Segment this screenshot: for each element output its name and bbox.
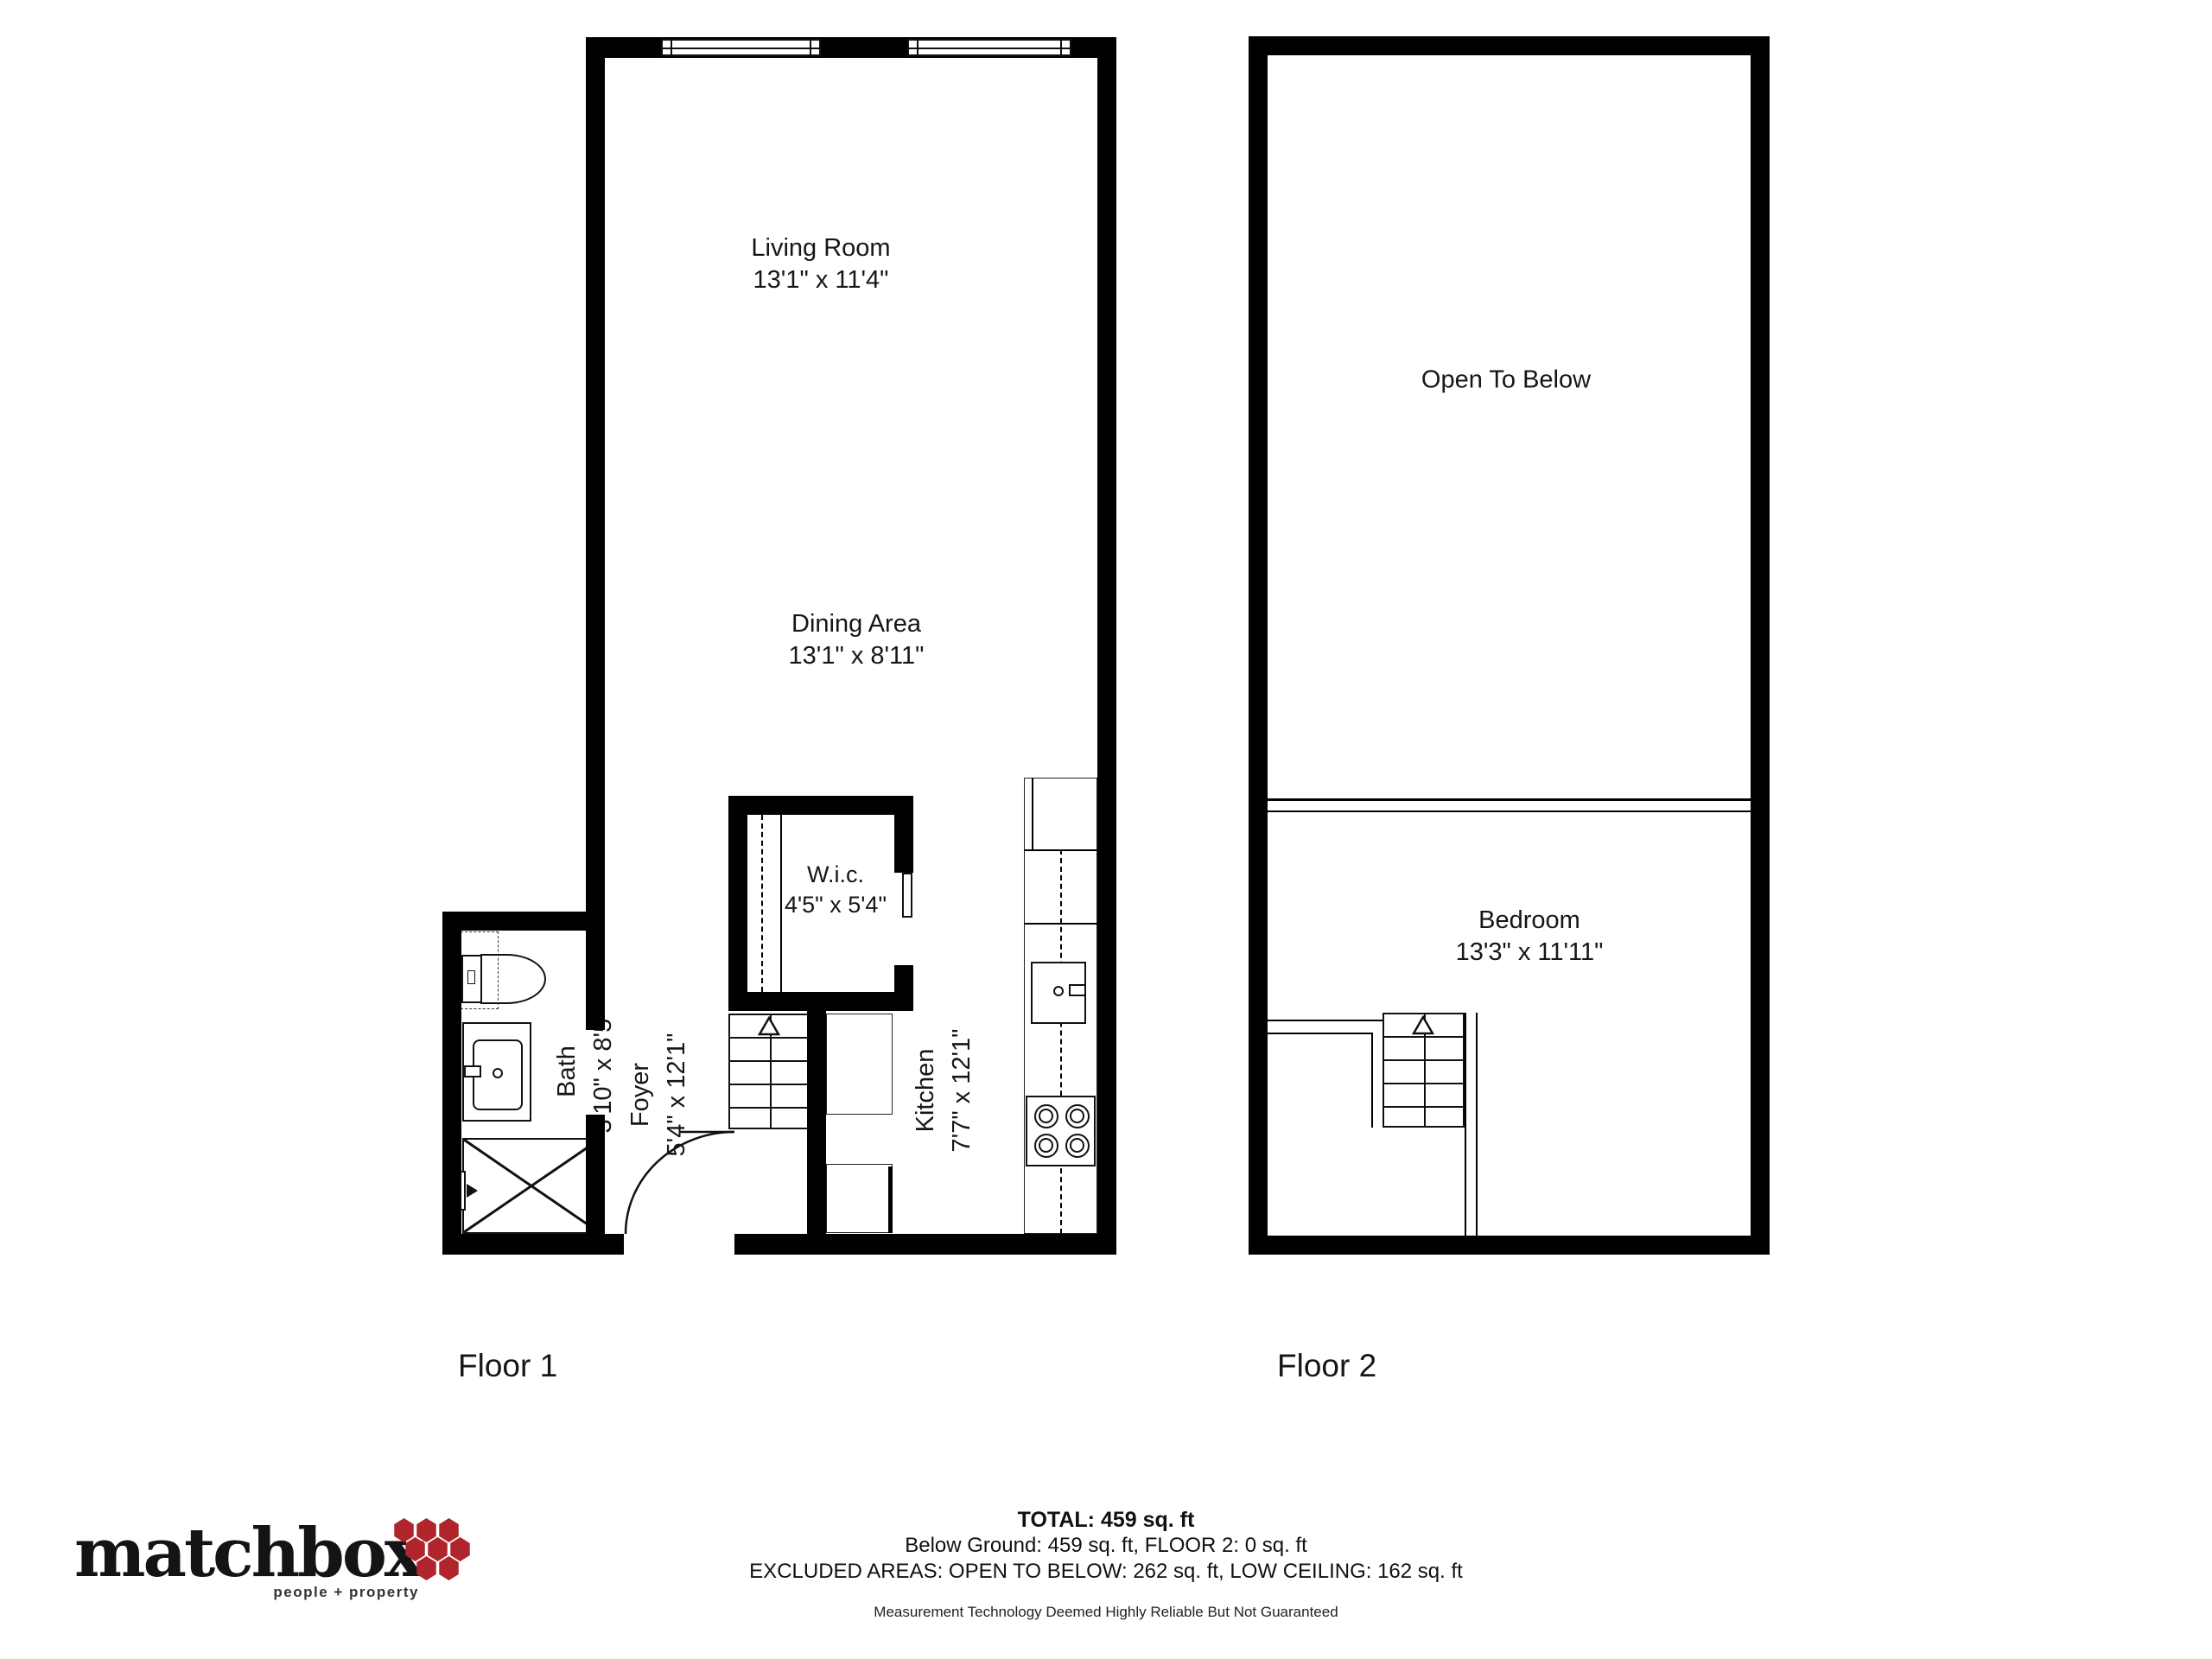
- logo-wordmark: matchbox: [74, 1514, 422, 1592]
- room-label-open-to-below: Open To Below: [1421, 365, 1591, 397]
- counter-divider: [1024, 923, 1097, 925]
- floor-plan-page: { "floor1": { "label": "Floor 1", "livin…: [0, 0, 2212, 1659]
- room-label-bedroom: Bedroom 13'3" x 11'11": [1456, 905, 1604, 969]
- room-dims: 13'1" x 11'4": [751, 264, 890, 296]
- closet-rod-dashed-line: [761, 815, 763, 992]
- window-frame: [917, 41, 918, 54]
- window-icon: [661, 39, 821, 56]
- wic-door-leaf: [902, 873, 912, 918]
- closet: [826, 1164, 893, 1233]
- room-name: Open To Below: [1421, 365, 1591, 397]
- window-frame: [1060, 41, 1062, 54]
- stair-railing-line: [1476, 1013, 1478, 1236]
- closet: [826, 1014, 893, 1115]
- disclaimer-text: Measurement Technology Deemed Highly Rel…: [0, 1604, 2212, 1621]
- room-name: Bedroom: [1456, 905, 1604, 937]
- loft-edge-line: [1268, 810, 1751, 812]
- front-door-opening: [624, 1234, 734, 1255]
- room-dims: 4'5" x 5'4": [785, 890, 887, 920]
- room-label-foyer: Foyer 5'4" x 12'1": [622, 1033, 695, 1157]
- stove-icon: [1026, 1096, 1096, 1166]
- room-name: Dining Area: [789, 608, 925, 640]
- wall: [586, 37, 605, 1030]
- window-mullion: [909, 48, 1070, 49]
- shower-icon: [462, 1138, 601, 1234]
- wall: [728, 992, 913, 1011]
- room-label-wic: W.i.c. 4'5" x 5'4": [785, 860, 887, 920]
- stairwell-line: [1371, 1033, 1373, 1128]
- sink-drain: [1053, 986, 1064, 996]
- wall: [442, 912, 461, 1255]
- refrigerator-line: [1032, 778, 1033, 849]
- room-label-bath: Bath 3'10" x 8'5": [549, 1010, 621, 1134]
- stairwell-line: [1268, 1033, 1372, 1034]
- stove-burner: [1065, 1104, 1090, 1128]
- closet-door-leaf: [888, 1166, 893, 1233]
- wall: [442, 912, 605, 931]
- stove-burner: [1065, 1134, 1090, 1158]
- window-icon: [907, 39, 1071, 56]
- loft-edge-line: [1268, 798, 1751, 801]
- wall: [894, 965, 913, 1011]
- floor1-caption: Floor 1: [458, 1348, 557, 1384]
- room-name: Bath: [549, 1010, 585, 1134]
- wall: [728, 796, 747, 1011]
- sink-faucet: [1069, 984, 1086, 996]
- counter-divider: [1024, 849, 1097, 851]
- room-label-living-room: Living Room 13'1" x 11'4": [751, 232, 890, 296]
- up-arrow-icon: [758, 1016, 780, 1037]
- stairwell-line: [1268, 1020, 1382, 1021]
- window-frame: [810, 41, 811, 54]
- sink-icon: [1031, 962, 1086, 1024]
- window-mullion: [663, 48, 819, 49]
- wall: [1751, 36, 1770, 1255]
- vanity-faucet: [464, 1065, 481, 1077]
- stair-railing-line: [1465, 1013, 1466, 1236]
- closet-shelf-line: [780, 815, 782, 992]
- basin-drain: [493, 1068, 503, 1078]
- room-label-kitchen: Kitchen 7'7" x 12'1": [907, 1029, 980, 1153]
- floor2-caption: Floor 2: [1277, 1348, 1376, 1384]
- room-dims: 5'4" x 12'1": [658, 1033, 695, 1157]
- room-dims: 7'7" x 12'1": [944, 1029, 980, 1153]
- logo-tagline: people + property: [216, 1584, 419, 1601]
- stove-burner: [1034, 1104, 1058, 1128]
- shower-head: [467, 1184, 478, 1198]
- wall: [894, 796, 913, 873]
- wall: [1249, 36, 1268, 1255]
- toilet-clearance-dashed-box: [461, 931, 499, 1009]
- room-dims: 13'1" x 8'11": [789, 640, 925, 672]
- shower-x-lines: [464, 1140, 599, 1232]
- wall: [728, 796, 913, 815]
- up-arrow-icon: [1412, 1015, 1434, 1036]
- stove-burner: [1034, 1134, 1058, 1158]
- room-name: W.i.c.: [785, 860, 887, 890]
- room-name: Foyer: [622, 1033, 658, 1157]
- wall: [1249, 36, 1770, 55]
- wall: [807, 1011, 826, 1234]
- counter-dashed-line: [1060, 849, 1062, 1234]
- room-name: Living Room: [751, 232, 890, 264]
- room-label-dining-area: Dining Area 13'1" x 8'11": [789, 608, 925, 672]
- room-name: Kitchen: [907, 1029, 944, 1153]
- wall: [1097, 37, 1116, 1255]
- room-dims: 13'3" x 11'11": [1456, 937, 1604, 969]
- wall: [442, 1234, 1116, 1255]
- wall: [1249, 1236, 1770, 1255]
- window-frame: [671, 41, 672, 54]
